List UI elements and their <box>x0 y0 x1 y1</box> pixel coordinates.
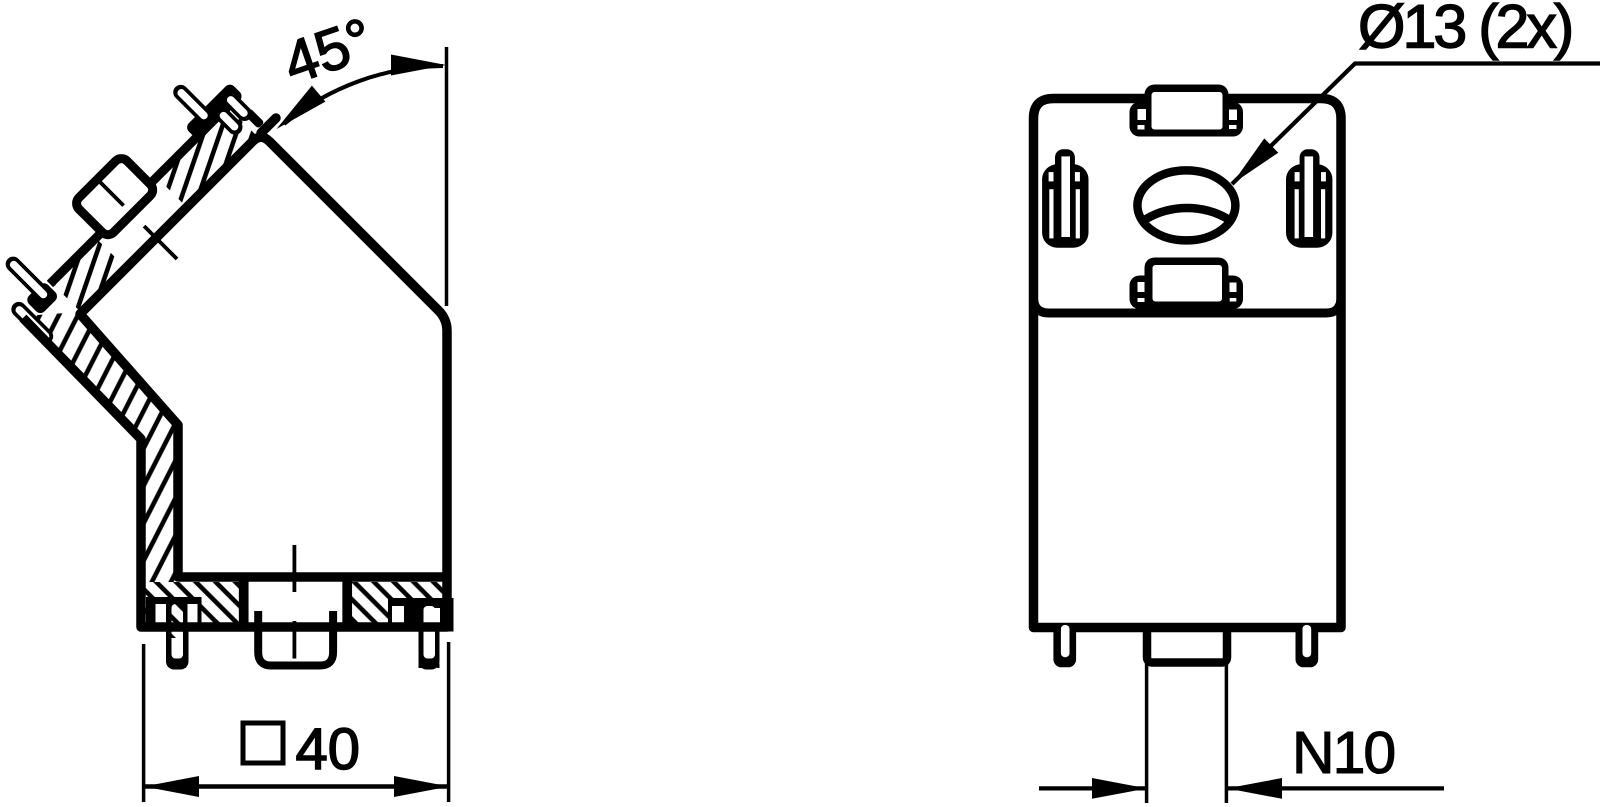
svg-text:N10: N10 <box>1292 720 1394 786</box>
svg-text:45°: 45° <box>275 5 381 96</box>
svg-text:40: 40 <box>296 717 361 782</box>
svg-text:Ø13 (2x): Ø13 (2x) <box>1358 0 1571 61</box>
